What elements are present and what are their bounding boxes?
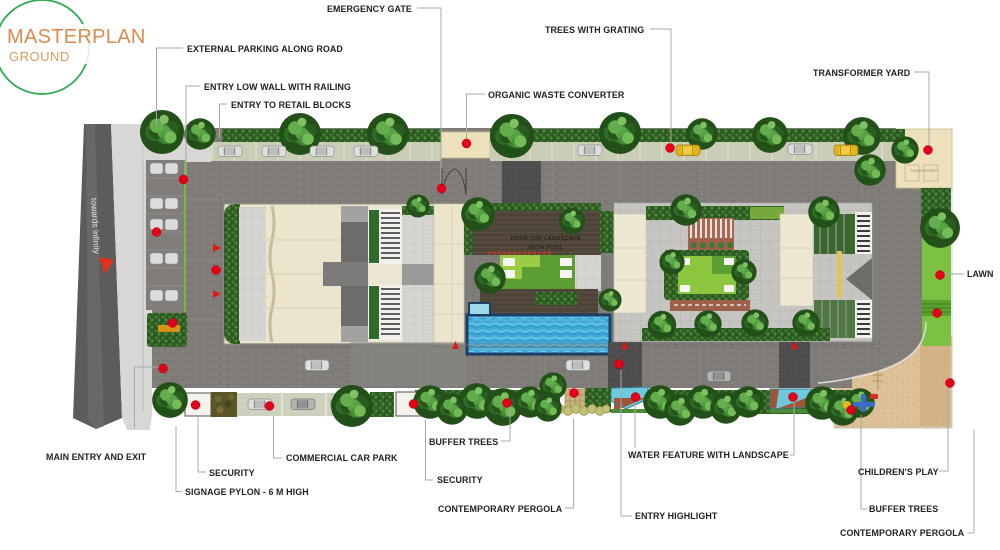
svg-text:LAWN: LAWN <box>967 269 994 279</box>
svg-text:WITH POOL: WITH POOL <box>529 245 563 251</box>
svg-text:COMMERCIAL CAR PARK: COMMERCIAL CAR PARK <box>286 453 398 463</box>
svg-text:ORGANIC WASTE CONVERTER: ORGANIC WASTE CONVERTER <box>488 90 625 100</box>
svg-text:MAIN ENTRY AND EXIT: MAIN ENTRY AND EXIT <box>46 452 147 462</box>
svg-text:ROOF TOP LANDSCAPE: ROOF TOP LANDSCAPE <box>511 236 581 242</box>
svg-text:CONTEMPORARY PERGOLA: CONTEMPORARY PERGOLA <box>840 528 965 538</box>
svg-text:ENTRY LOW WALL WITH RAILING: ENTRY LOW WALL WITH RAILING <box>204 82 351 92</box>
svg-text:EMERGENCY GATE: EMERGENCY GATE <box>327 4 412 14</box>
svg-text:GROUND: GROUND <box>9 49 70 64</box>
svg-text:BUFFER TREES: BUFFER TREES <box>429 437 498 447</box>
svg-text:TREES WITH GRATING: TREES WITH GRATING <box>545 25 644 35</box>
svg-text:SECURITY: SECURITY <box>209 468 255 478</box>
svg-text:SIGNAGE PYLON - 6 M HIGH: SIGNAGE PYLON - 6 M HIGH <box>185 487 309 497</box>
svg-text:MASTERPLAN: MASTERPLAN <box>7 26 146 48</box>
svg-text:TRANSFORMER: TRANSFORMER <box>910 169 938 173</box>
svg-text:CONTEMPORARY PERGOLA: CONTEMPORARY PERGOLA <box>438 504 563 514</box>
svg-text:CHILDREN'S PLAY: CHILDREN'S PLAY <box>858 467 939 477</box>
svg-text:SECURITY: SECURITY <box>437 475 483 485</box>
svg-text:ENTRY TO RETAIL BLOCKS: ENTRY TO RETAIL BLOCKS <box>231 100 351 110</box>
svg-text:TRANSFORMER YARD: TRANSFORMER YARD <box>813 68 911 78</box>
svg-text:WATER FEATURE WITH LANDSCAPE: WATER FEATURE WITH LANDSCAPE <box>628 450 789 460</box>
svg-text:BUFFER TREES: BUFFER TREES <box>869 504 938 514</box>
svg-text:ENTRY HIGHLIGHT: ENTRY HIGHLIGHT <box>635 511 718 521</box>
svg-text:EXTERNAL PARKING ALONG ROAD: EXTERNAL PARKING ALONG ROAD <box>187 44 343 54</box>
